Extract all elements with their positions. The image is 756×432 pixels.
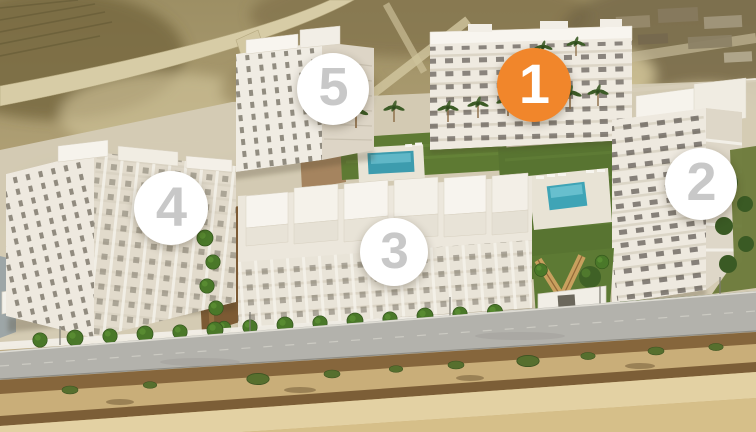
pool-right <box>528 168 612 230</box>
building-marker-1-label: 1 <box>519 51 549 116</box>
big-tree <box>579 266 601 288</box>
building-marker-4-label: 4 <box>156 174 186 239</box>
building-marker-1[interactable]: 1 <box>497 48 571 122</box>
building-marker-2-label: 2 <box>686 151 715 213</box>
building-marker-4[interactable]: 4 <box>134 171 208 245</box>
complex-illustration <box>0 0 756 432</box>
aerial-render: 1 2 3 4 5 <box>0 0 756 432</box>
building-marker-3-label: 3 <box>380 221 407 280</box>
building-marker-2[interactable]: 2 <box>665 148 737 220</box>
building-marker-3[interactable]: 3 <box>360 218 428 286</box>
building-marker-5-label: 5 <box>318 56 347 118</box>
building-marker-5[interactable]: 5 <box>297 53 369 125</box>
